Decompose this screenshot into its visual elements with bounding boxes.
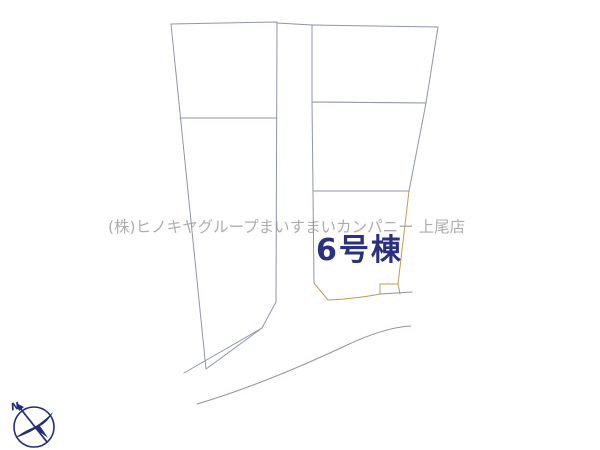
parcel-left-block — [171, 22, 277, 369]
watermark-text: (株)ヒノキヤグループまいすまいカンパニー 上尾店 — [108, 215, 465, 237]
parcel-6-label: 6号棟 — [316, 225, 403, 269]
road-strip-top — [277, 23, 312, 25]
compass-needle — [20, 408, 47, 442]
setback-line — [380, 292, 412, 294]
parcel-upper-right — [312, 25, 438, 103]
compass-north-label: N — [10, 401, 21, 414]
compass-north-icon: N — [8, 398, 60, 450]
parcel-mid-right — [312, 102, 426, 191]
site-plan-map: (株)ヒノキヤグループまいすまいカンパニー 上尾店 6号棟 N — [0, 0, 600, 450]
